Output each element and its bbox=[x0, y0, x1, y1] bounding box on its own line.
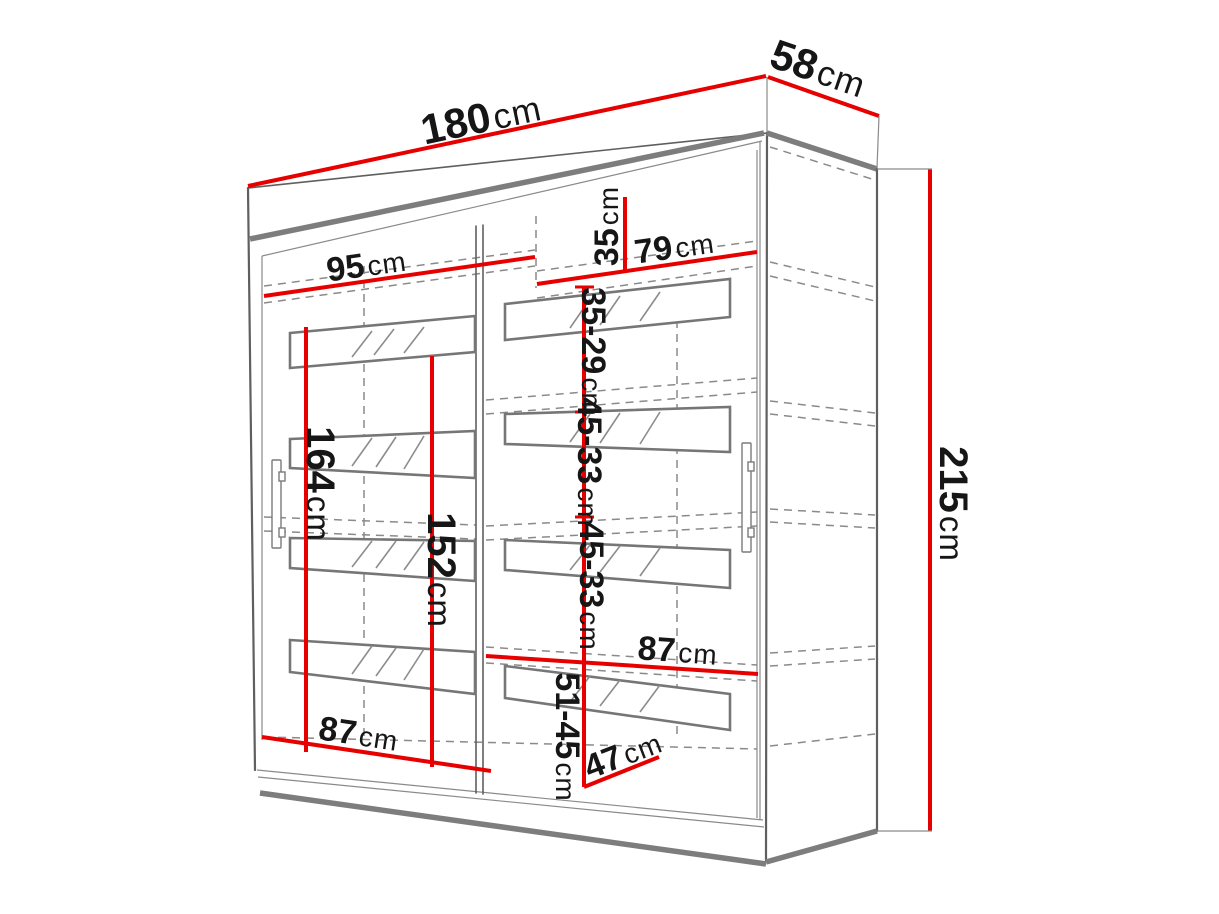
diagram-canvas: 180cm 58cm 215cm 95cm 79cm 35cm 35-29cm … bbox=[0, 0, 1219, 914]
door-handle-right bbox=[742, 443, 754, 552]
mirror-strip bbox=[505, 666, 730, 730]
dim-left-hanging-height-label: 164cm bbox=[298, 426, 342, 542]
dim-height-label: 215cm bbox=[931, 446, 975, 562]
dim-width-label: 180cm bbox=[417, 82, 546, 153]
dim-top-shelf-height-label: 35cm bbox=[588, 186, 626, 266]
mirror-strip bbox=[505, 407, 730, 452]
dim-shelf-gap-2-label: 45-33cm bbox=[570, 397, 608, 526]
dim-center-hanging-height-label: 152cm bbox=[419, 512, 463, 628]
mirror-strip bbox=[505, 279, 730, 340]
dim-top-left-width-label: 95cm bbox=[324, 241, 409, 290]
dim-interior-depth-label: 47cm bbox=[579, 723, 667, 787]
mirror-strip bbox=[505, 540, 730, 588]
dim-top-right-width-label: 79cm bbox=[632, 223, 717, 272]
wardrobe-dimension-diagram: 180cm 58cm 215cm 95cm 79cm 35cm 35-29cm … bbox=[0, 0, 1219, 914]
dim-shelf-gap-3-label: 45-33cm bbox=[572, 521, 610, 650]
mirror-strip bbox=[290, 640, 475, 694]
dim-bottom-right-width-label: 87cm bbox=[636, 629, 719, 672]
mirror-strip bbox=[290, 316, 475, 368]
dim-shelf-gap-4-label: 51-45cm bbox=[548, 672, 586, 801]
door-handle-left bbox=[272, 460, 285, 548]
